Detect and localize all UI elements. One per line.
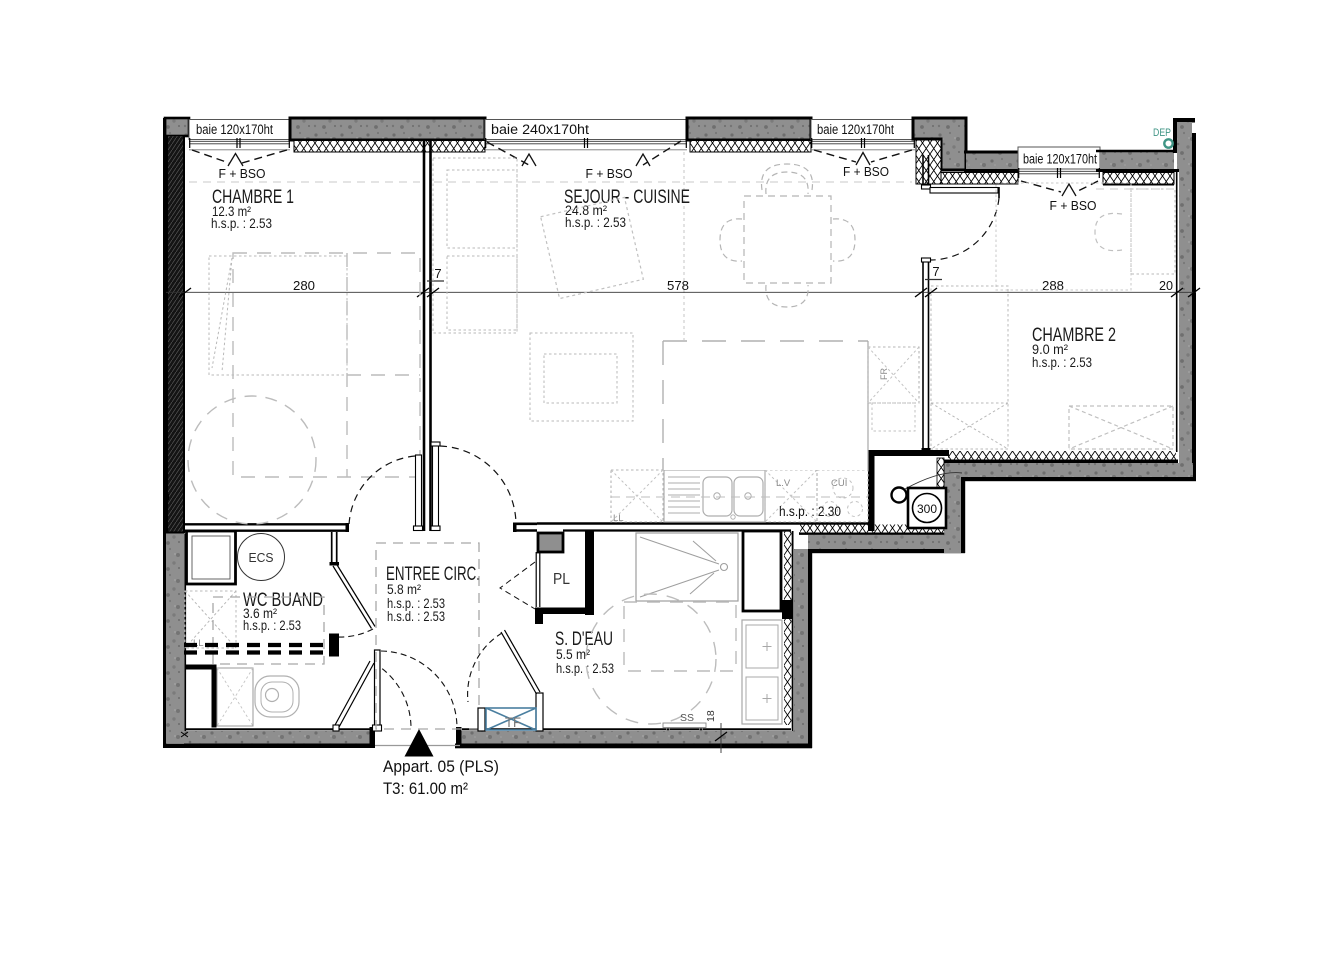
svg-text:18: 18 — [705, 710, 717, 722]
svg-text:h.s.p. : 2.53: h.s.p. : 2.53 — [1032, 355, 1092, 370]
svg-text:20: 20 — [1159, 278, 1173, 293]
svg-text:baie 240x170ht: baie 240x170ht — [491, 122, 589, 137]
svg-text:F + BSO: F + BSO — [586, 167, 633, 181]
svg-text:L.V: L.V — [776, 478, 791, 489]
svg-text:578: 578 — [667, 278, 689, 293]
svg-text:T3: 61.00 m²: T3: 61.00 m² — [383, 780, 468, 798]
svg-text:288: 288 — [1042, 278, 1064, 293]
svg-text:baie 120x170ht: baie 120x170ht — [1023, 152, 1097, 167]
svg-text:CUI: CUI — [831, 478, 847, 489]
svg-text:7: 7 — [932, 264, 939, 279]
svg-text:h.s.p. : 2.53: h.s.p. : 2.53 — [556, 661, 614, 676]
svg-text:5.8 m²: 5.8 m² — [387, 582, 421, 597]
svg-text:Appart. 05 (PLS): Appart. 05 (PLS) — [383, 758, 499, 776]
svg-text:280: 280 — [293, 278, 315, 293]
svg-text:LL: LL — [613, 513, 624, 524]
svg-text:h.s.p. : 2.53: h.s.p. : 2.53 — [565, 215, 626, 230]
svg-text:5.5 m²: 5.5 m² — [556, 647, 590, 662]
svg-text:FR: FR — [879, 368, 889, 380]
svg-text:baie 120x170ht: baie 120x170ht — [817, 122, 894, 137]
svg-text:h.s.p. : 2.30: h.s.p. : 2.30 — [779, 504, 841, 519]
svg-text:F + BSO: F + BSO — [1050, 199, 1097, 213]
svg-text:DEP: DEP — [1153, 127, 1171, 139]
svg-text:7: 7 — [434, 266, 441, 281]
svg-text:TF: TF — [505, 714, 521, 730]
svg-text:F + BSO: F + BSO — [219, 167, 266, 181]
svg-text:300: 300 — [917, 504, 937, 516]
svg-text:ECS: ECS — [249, 551, 274, 565]
svg-text:SS: SS — [680, 712, 694, 724]
svg-text:h.s.d. : 2.53: h.s.d. : 2.53 — [387, 609, 445, 624]
svg-text:baie 120x170ht: baie 120x170ht — [196, 122, 273, 137]
svg-text:F + BSO: F + BSO — [843, 165, 889, 179]
svg-text:PL: PL — [553, 571, 570, 588]
svg-text:h.s.p. : 2.53: h.s.p. : 2.53 — [211, 216, 272, 231]
svg-text:h.s.p. : 2.53: h.s.p. : 2.53 — [243, 618, 301, 633]
